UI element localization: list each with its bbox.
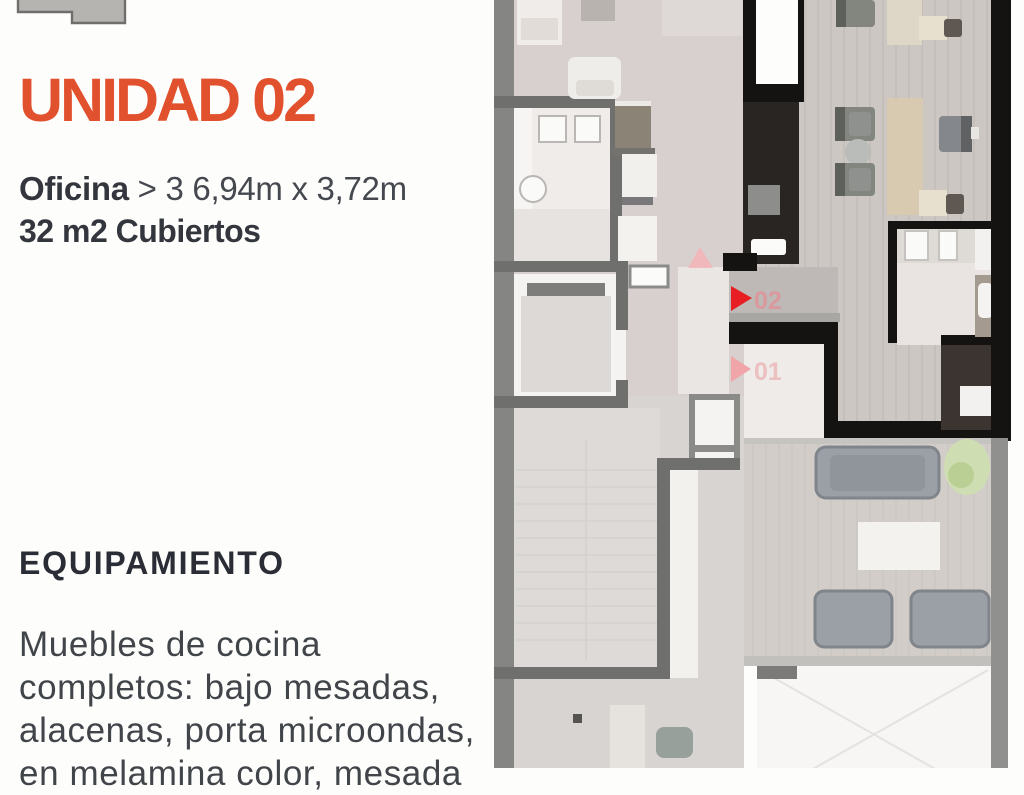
svg-text:01: 01 <box>754 358 782 386</box>
svg-text:02: 02 <box>754 287 782 315</box>
